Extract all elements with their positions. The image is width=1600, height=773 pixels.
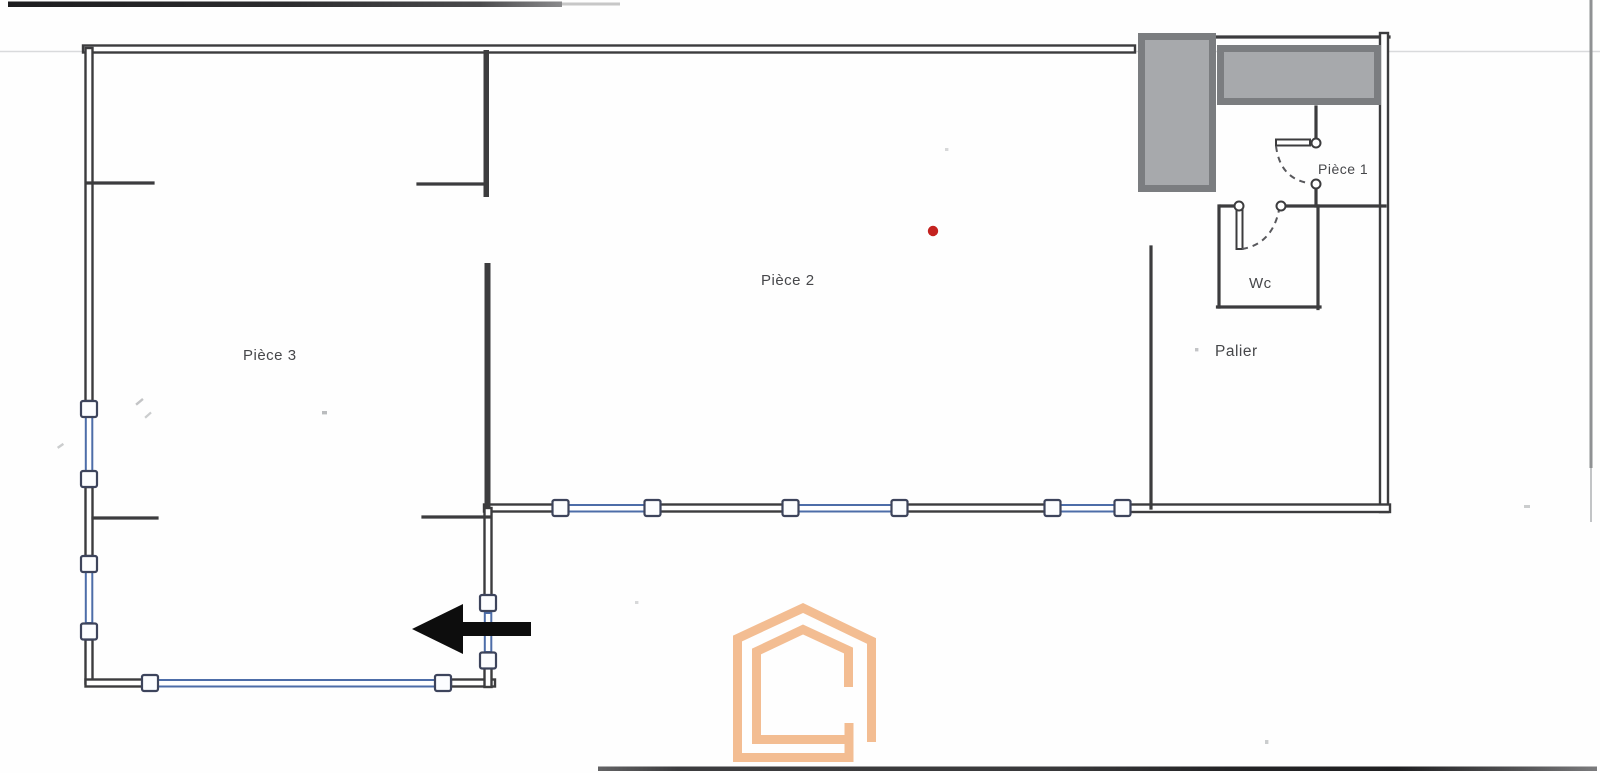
wall-main-seg1: [484, 505, 557, 512]
room-label-piece1: Pièce 1: [1318, 161, 1368, 177]
room-label-piece2: Pièce 2: [761, 272, 815, 289]
wall-right: [1380, 33, 1388, 512]
scan-artifacts: [0, 0, 1600, 771]
room-label-piece3: Pièce 3: [243, 347, 297, 364]
wall-divider-lower: [485, 263, 491, 508]
wall-left-lower: [86, 640, 93, 684]
room-label-palier: Palier: [1215, 343, 1258, 361]
pencil-mark-icon: [144, 412, 151, 419]
door-piece1-swing-arc: [1276, 146, 1308, 183]
door-piece1-hinge-icon: [1312, 139, 1321, 148]
wall-left-mid: [86, 487, 93, 556]
scan-bottom-line: [598, 767, 1597, 772]
door-wc-leaf: [1237, 210, 1243, 249]
window-squares: [81, 401, 1131, 691]
wall-bottom-left: [86, 680, 143, 687]
entrance-arrow-icon: [412, 604, 531, 654]
floor-plan-drawing: [0, 0, 1600, 773]
red-dot-marker: [928, 226, 938, 236]
door-piece1-stop-icon: [1312, 180, 1321, 189]
house-logo-icon: [738, 608, 872, 758]
gray-block-horizontal: [1221, 49, 1378, 102]
pencil-mark-icon: [135, 398, 143, 406]
wall-main-seg2: [656, 505, 787, 512]
speck-icon: [1524, 505, 1530, 508]
wall-mid-vertical-lower: [485, 668, 492, 687]
windows: [81, 401, 1131, 691]
speck-icon: [635, 601, 638, 604]
speck-icon: [1195, 348, 1198, 351]
window-main-1: [564, 505, 649, 512]
speck-icon: [1265, 740, 1268, 744]
window-main-2: [794, 505, 896, 512]
door-wc-hinge-icon: [1235, 202, 1244, 211]
door-wc: [1235, 202, 1286, 250]
wall-palier-bottom: [1130, 505, 1390, 513]
door-piece1-leaf: [1276, 140, 1310, 146]
speck-icon: [57, 443, 64, 449]
door-wc-stop-icon: [1277, 202, 1286, 211]
wall-mid-vertical-upper: [485, 508, 492, 596]
window-main-3: [1056, 505, 1119, 512]
wall-divider-upper: [484, 50, 490, 197]
window-left-1: [86, 417, 93, 471]
scan-top-bar-tail: [562, 3, 620, 6]
window-bottom: [158, 680, 435, 687]
wall-main-seg3: [903, 505, 1049, 512]
scan-top-bar: [8, 2, 562, 8]
door-wc-swing-arc: [1242, 210, 1279, 249]
wall-top: [83, 46, 1135, 53]
gray-block-vertical: [1142, 37, 1213, 189]
floor-plan-page: Pièce 3 Pièce 2 Pièce 1 Wc Palier: [0, 0, 1600, 773]
door-piece1: [1276, 107, 1321, 189]
room-label-wc: Wc: [1249, 275, 1272, 292]
wall-left-upper: [86, 48, 93, 401]
window-left-2: [86, 572, 93, 623]
speck-icon: [945, 148, 948, 151]
speck-icon: [322, 411, 327, 414]
